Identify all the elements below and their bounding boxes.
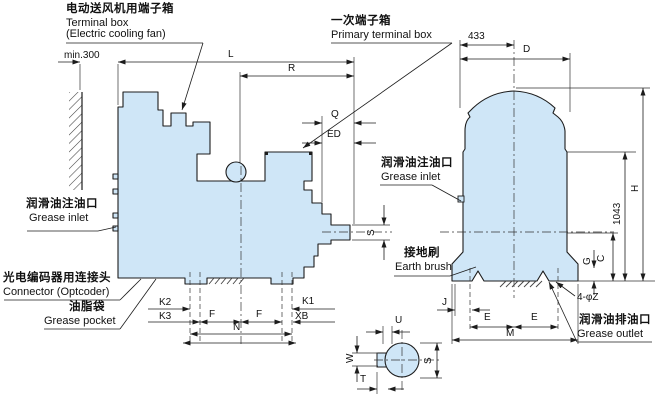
label-primary-terminal-box-cn: 一次端子箱 <box>331 15 391 28</box>
dim-G: G <box>582 257 594 265</box>
label-grease-pocket-en: Grease pocket <box>44 315 116 328</box>
dim-S-side: S <box>366 229 378 236</box>
wall-hatch <box>69 92 82 190</box>
grease-fitting <box>113 174 118 179</box>
dim-J: J <box>442 297 447 309</box>
label-grease-inlet-side-cn: 润滑油注油口 <box>26 198 98 211</box>
label-earth-brush-en: Earth brush <box>395 261 452 274</box>
dim-M: M <box>506 328 514 340</box>
label-fan-terminal-box-cn: 电动送风机用端子箱 <box>66 3 174 16</box>
dim-K1: K1 <box>302 296 314 308</box>
dim-1043: 1043 <box>612 203 624 225</box>
side-view-outline <box>118 92 350 284</box>
label-grease-outlet-cn: 润滑油排油口 <box>579 314 651 327</box>
dim-F2: F <box>256 309 262 321</box>
label-earth-brush-cn: 接地刷 <box>404 247 440 260</box>
dim-W: W <box>345 354 357 363</box>
dim-R: R <box>288 63 295 75</box>
dim-E1: E <box>484 312 491 324</box>
dim-N: N <box>233 322 240 334</box>
dim-L: L <box>228 49 234 61</box>
dim-433: 433 <box>468 31 485 43</box>
label-grease-pocket-cn: 油脂袋 <box>69 301 105 314</box>
dim-D: D <box>523 44 530 56</box>
label-grease-inlet-end-en: Grease inlet <box>381 171 440 184</box>
dim-Q: Q <box>331 109 339 121</box>
dim-H: H <box>630 185 642 192</box>
dim-ED: ED <box>327 129 341 141</box>
dim-XB: XB <box>295 311 308 323</box>
label-fan-terminal-box-en2: (Electric cooling fan) <box>66 28 166 41</box>
dim-C: C <box>596 255 608 262</box>
dim-K2: K2 <box>159 297 171 309</box>
label-grease-outlet-en: Grease outlet <box>577 328 643 341</box>
dim-U: U <box>395 315 402 327</box>
engineering-drawing: 电动送风机用端子箱 Terminal box (Electric cooling… <box>0 0 660 404</box>
dim-min300: min.300 <box>64 50 100 62</box>
label-grease-inlet-side-en: Grease inlet <box>29 212 88 225</box>
label-grease-inlet-end-cn: 润滑油注油口 <box>381 157 453 170</box>
label-connector-cn: 光电编码器用连接头 <box>3 272 111 285</box>
grease-fitting <box>113 213 118 218</box>
dim-T: T <box>360 374 366 386</box>
terminal-box-bolt <box>265 152 268 155</box>
dim-S-shaft: S <box>423 357 435 364</box>
dim-F1: F <box>209 309 215 321</box>
dim-E2: E <box>531 312 538 324</box>
label-connector-en: Connector (Optcoder) <box>3 286 109 299</box>
end-view-outline <box>452 91 578 281</box>
dim-K3: K3 <box>159 311 171 323</box>
grease-inlet-nub <box>458 196 464 202</box>
terminal-box-bolt <box>309 152 312 155</box>
dim-4-phi-Z: 4-φZ <box>577 292 598 304</box>
grease-fitting <box>113 189 118 194</box>
label-primary-terminal-box-en: Primary terminal box <box>331 29 432 42</box>
lifting-eye <box>226 162 246 182</box>
